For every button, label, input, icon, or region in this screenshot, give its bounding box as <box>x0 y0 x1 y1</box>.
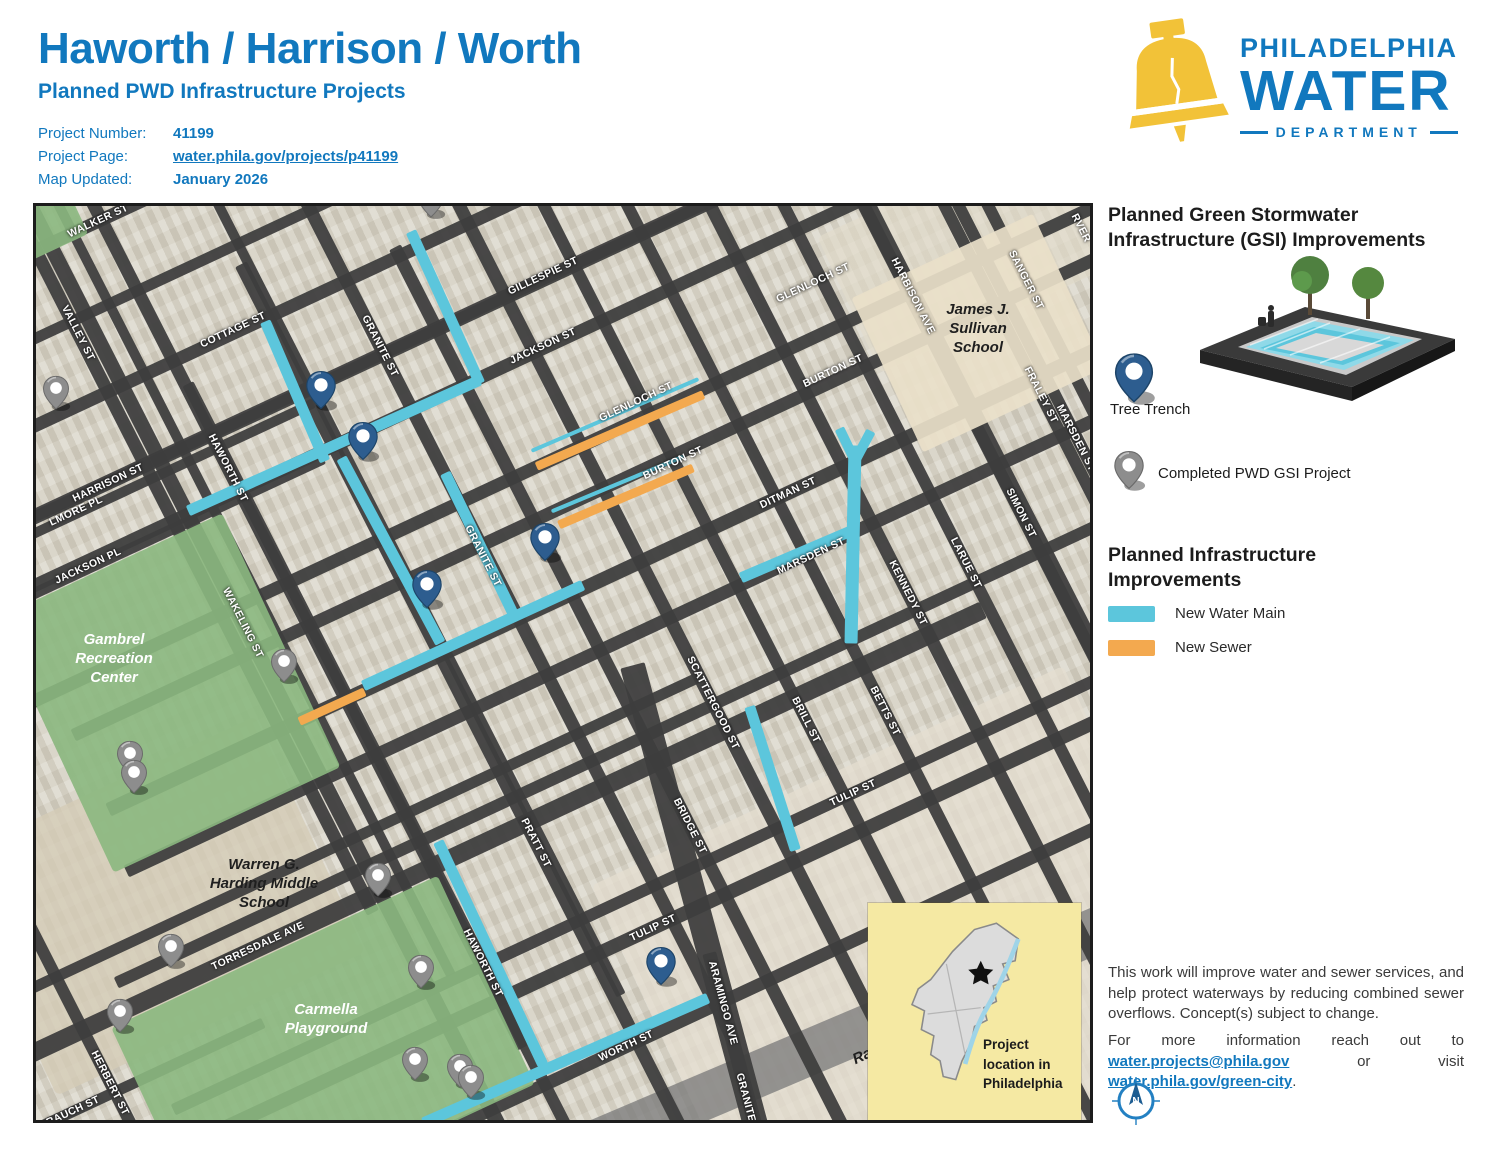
completed-gsi-pin <box>363 861 393 904</box>
logo-dash-right <box>1430 131 1458 134</box>
place-label-warren-g-: Warren G.Harding MiddleSchool <box>210 856 318 912</box>
gsi-heading: Planned Green Stormwater Infrastructure … <box>1108 203 1468 254</box>
water-main-label: New Water Main <box>1175 605 1285 622</box>
tree-trench-pin <box>304 369 338 417</box>
project-page-row: Project Page: water.phila.gov/projects/p… <box>38 145 1038 168</box>
project-number-label: Project Number: <box>38 122 173 145</box>
completed-gsi-legend-pin <box>1112 449 1146 497</box>
completed-gsi-pin <box>41 374 71 417</box>
infra-legend: New Water Main New Sewer <box>1108 605 1468 673</box>
infra-heading: Planned Infrastructure Improvements <box>1108 543 1388 594</box>
place-label-gambrel: GambrelRecreationCenter <box>75 631 153 687</box>
legend-sidebar: Planned Green Stormwater Infrastructure … <box>1108 203 1468 1133</box>
completed-gsi-pin <box>269 647 299 690</box>
liberty-bell-icon <box>1118 18 1230 155</box>
place-label-james-j-: James J.SullivanSchool <box>946 301 1009 357</box>
tree-trench-pin <box>528 521 562 569</box>
sewer-label: New Sewer <box>1175 639 1252 656</box>
completed-gsi-label: Completed PWD GSI Project <box>1158 465 1351 482</box>
inset-caption: Projectlocation inPhiladelphia <box>983 1035 1063 1094</box>
logo-department-row: DEPARTMENT <box>1240 124 1458 140</box>
page-subtitle: Planned PWD Infrastructure Projects <box>38 80 1038 104</box>
project-number-value: 41199 <box>173 122 214 145</box>
page-title: Haworth / Harrison / Worth <box>38 26 1038 72</box>
completed-gsi-pin <box>456 1063 486 1106</box>
map-updated-label: Map Updated: <box>38 168 173 191</box>
project-number-row: Project Number: 41199 <box>38 122 1038 145</box>
note2-mid: or visit <box>1289 1053 1464 1070</box>
north-arrow: N <box>1110 1075 1162 1132</box>
tree-trench-pin <box>346 420 380 468</box>
pwd-logo: PHILADELPHIA WATER DEPARTMENT <box>1118 18 1470 155</box>
project-map: WALKER STVALLEY STCOTTAGE STGILLESPIE ST… <box>33 203 1093 1123</box>
tree-trench-pin <box>410 568 444 616</box>
logo-department: DEPARTMENT <box>1276 124 1422 140</box>
map-updated-value: January 2026 <box>173 168 268 191</box>
map-updated-row: Map Updated: January 2026 <box>38 168 1038 191</box>
map-canvas: WALKER STVALLEY STCOTTAGE STGILLESPIE ST… <box>36 206 1090 1120</box>
note2-prefix: For more information reach out to <box>1108 1032 1464 1049</box>
projects-email-link[interactable]: water.projects@phila.gov <box>1108 1053 1289 1070</box>
svg-text:N: N <box>1132 1096 1139 1107</box>
project-meta: Project Number: 41199 Project Page: wate… <box>38 122 1038 191</box>
sewer-swatch <box>1108 640 1155 656</box>
project-page-link[interactable]: water.phila.gov/projects/p41199 <box>173 148 398 165</box>
completed-gsi-row: Completed PWD GSI Project <box>1112 449 1351 497</box>
place-label-carmella: CarmellaPlayground <box>285 1001 368 1039</box>
completed-gsi-pin <box>105 997 135 1040</box>
tree-trench-illustration <box>1180 255 1468 410</box>
completed-gsi-pin <box>416 206 446 225</box>
legend-row-sewer: New Sewer <box>1108 639 1468 656</box>
note-paragraph-1: This work will improve water and sewer s… <box>1108 963 1464 1025</box>
note2-suffix: . <box>1292 1073 1296 1090</box>
completed-gsi-pin <box>406 953 436 996</box>
location-inset-map: Projectlocation inPhiladelphia <box>868 903 1081 1120</box>
water-main-swatch <box>1108 606 1155 622</box>
tree-trench-label: Tree Trench <box>1110 401 1190 418</box>
page-header: Haworth / Harrison / Worth Planned PWD I… <box>38 26 1038 191</box>
logo-water: WATER <box>1240 64 1458 118</box>
logo-dash-left <box>1240 131 1268 134</box>
legend-row-water-main: New Water Main <box>1108 605 1468 622</box>
completed-gsi-pin <box>156 932 186 975</box>
pwd-logo-text: PHILADELPHIA WATER DEPARTMENT <box>1240 33 1458 140</box>
tree-trench-pin <box>644 945 678 993</box>
completed-gsi-pin <box>119 758 149 801</box>
project-notes: This work will improve water and sewer s… <box>1108 963 1464 1093</box>
completed-gsi-pin <box>400 1045 430 1088</box>
project-page-label: Project Page: <box>38 145 173 168</box>
